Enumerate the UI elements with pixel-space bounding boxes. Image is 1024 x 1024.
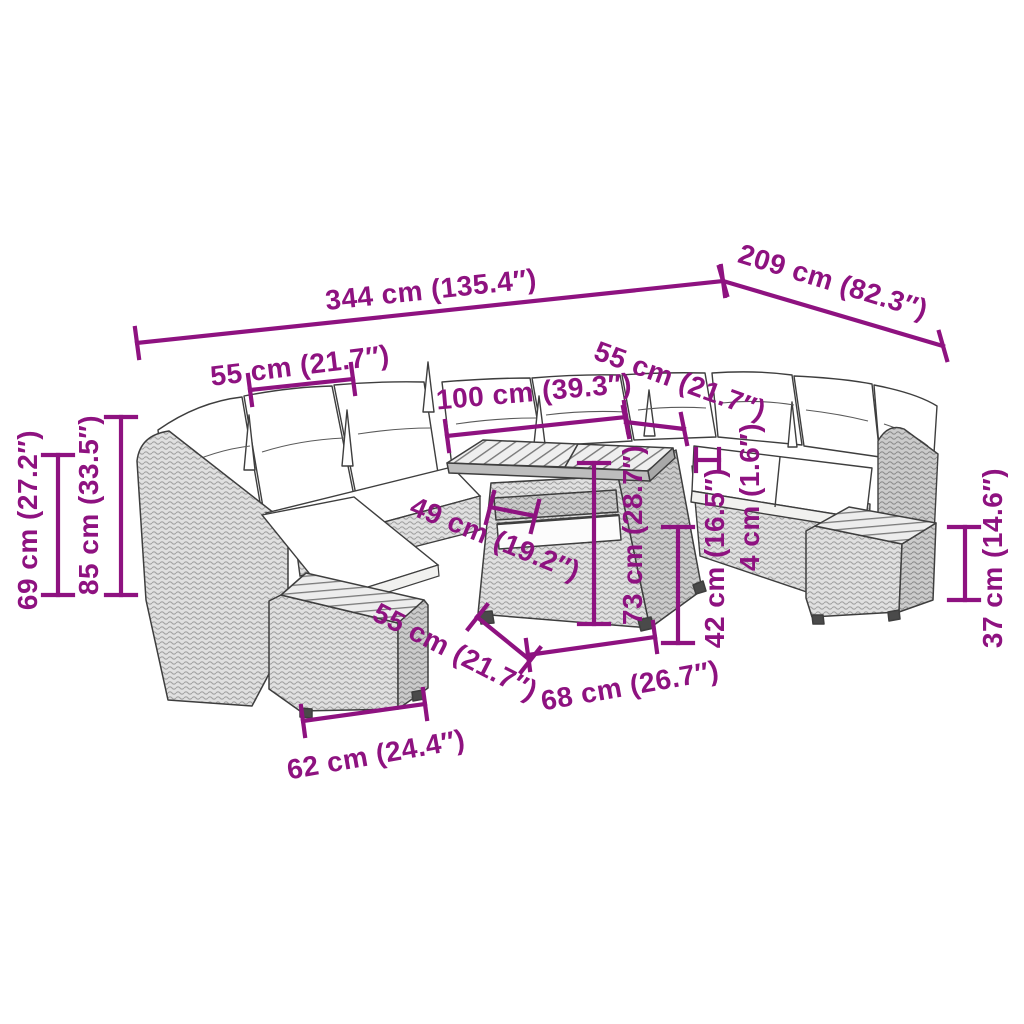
right-ottoman	[806, 507, 936, 624]
product-dimension-diagram: 344 cm (135.4″) 209 cm (82.3″) 55 cm (21…	[0, 0, 1024, 1024]
dimension-line-left-height-total	[106, 417, 136, 595]
dimension-label-seat-height: 42 cm (16.5″)	[699, 468, 731, 648]
back-cushion	[794, 376, 880, 457]
dimension-label-left-height-total: 85 cm (33.5″)	[73, 415, 105, 595]
ottoman-foot	[812, 615, 824, 624]
dimension-label-cushion-thickness: 4 cm (1.6″)	[734, 423, 766, 571]
left-ottoman	[269, 573, 428, 718]
dimension-label-left-height-outer: 69 cm (27.2″)	[12, 430, 44, 610]
ottoman-foot	[888, 610, 900, 621]
dimension-line-ottoman-height	[949, 527, 979, 600]
dimension-line-table-base-width	[526, 622, 657, 670]
dimension-label-table-height: 73 cm (28.7″)	[617, 445, 649, 625]
furniture-line-art	[0, 0, 1024, 1024]
dimension-label-ottoman-height: 37 cm (14.6″)	[977, 468, 1009, 648]
dimension-line-left-height-outer	[43, 455, 73, 595]
